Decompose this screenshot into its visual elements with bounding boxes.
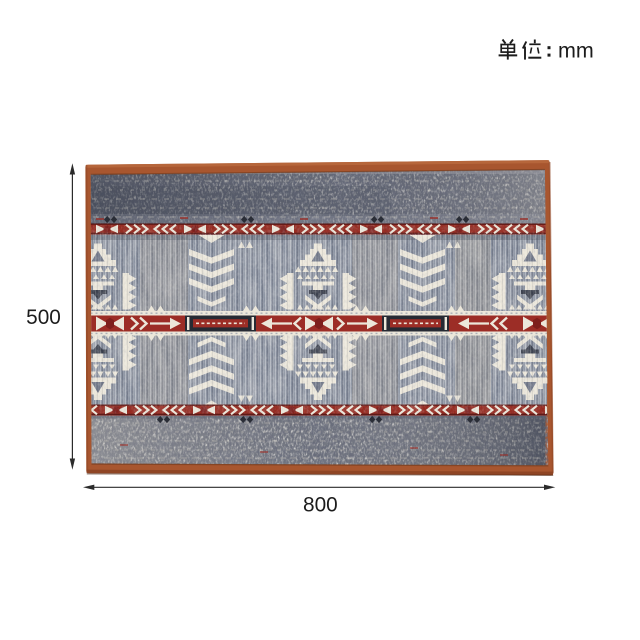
svg-text:500: 500 <box>26 306 61 329</box>
svg-text:mm: mm <box>558 39 594 63</box>
svg-text:800: 800 <box>303 493 338 516</box>
